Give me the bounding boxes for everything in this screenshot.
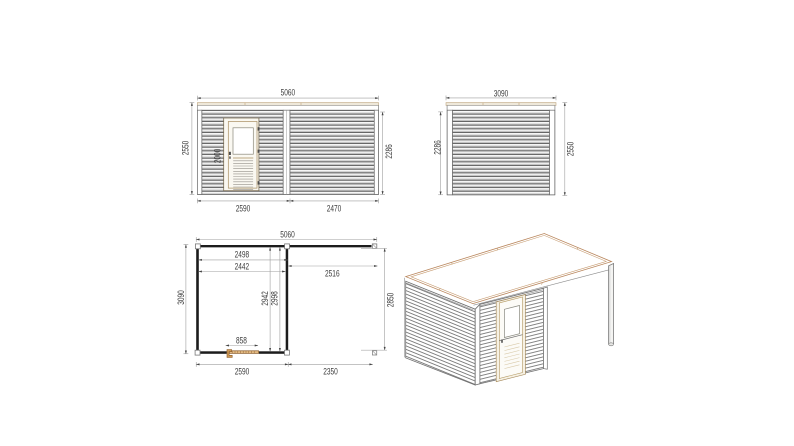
svg-text:5060: 5060 xyxy=(280,229,295,240)
svg-text:3090: 3090 xyxy=(494,89,509,100)
svg-text:2498: 2498 xyxy=(235,250,250,261)
svg-text:2516: 2516 xyxy=(325,268,340,279)
svg-text:2850: 2850 xyxy=(386,293,397,308)
svg-text:2590: 2590 xyxy=(235,367,250,378)
svg-text:3090: 3090 xyxy=(176,290,187,305)
svg-text:2286: 2286 xyxy=(432,140,443,155)
svg-text:2550: 2550 xyxy=(181,141,192,156)
svg-text:5060: 5060 xyxy=(281,88,296,99)
svg-text:2000: 2000 xyxy=(213,149,224,164)
svg-text:2470: 2470 xyxy=(327,203,342,214)
svg-text:2590: 2590 xyxy=(236,203,251,214)
svg-text:2350: 2350 xyxy=(323,367,338,378)
svg-text:858: 858 xyxy=(236,335,247,346)
svg-text:2442: 2442 xyxy=(235,262,250,273)
svg-text:2550: 2550 xyxy=(566,142,577,157)
svg-text:2998: 2998 xyxy=(270,291,281,306)
svg-text:2286: 2286 xyxy=(384,144,395,159)
